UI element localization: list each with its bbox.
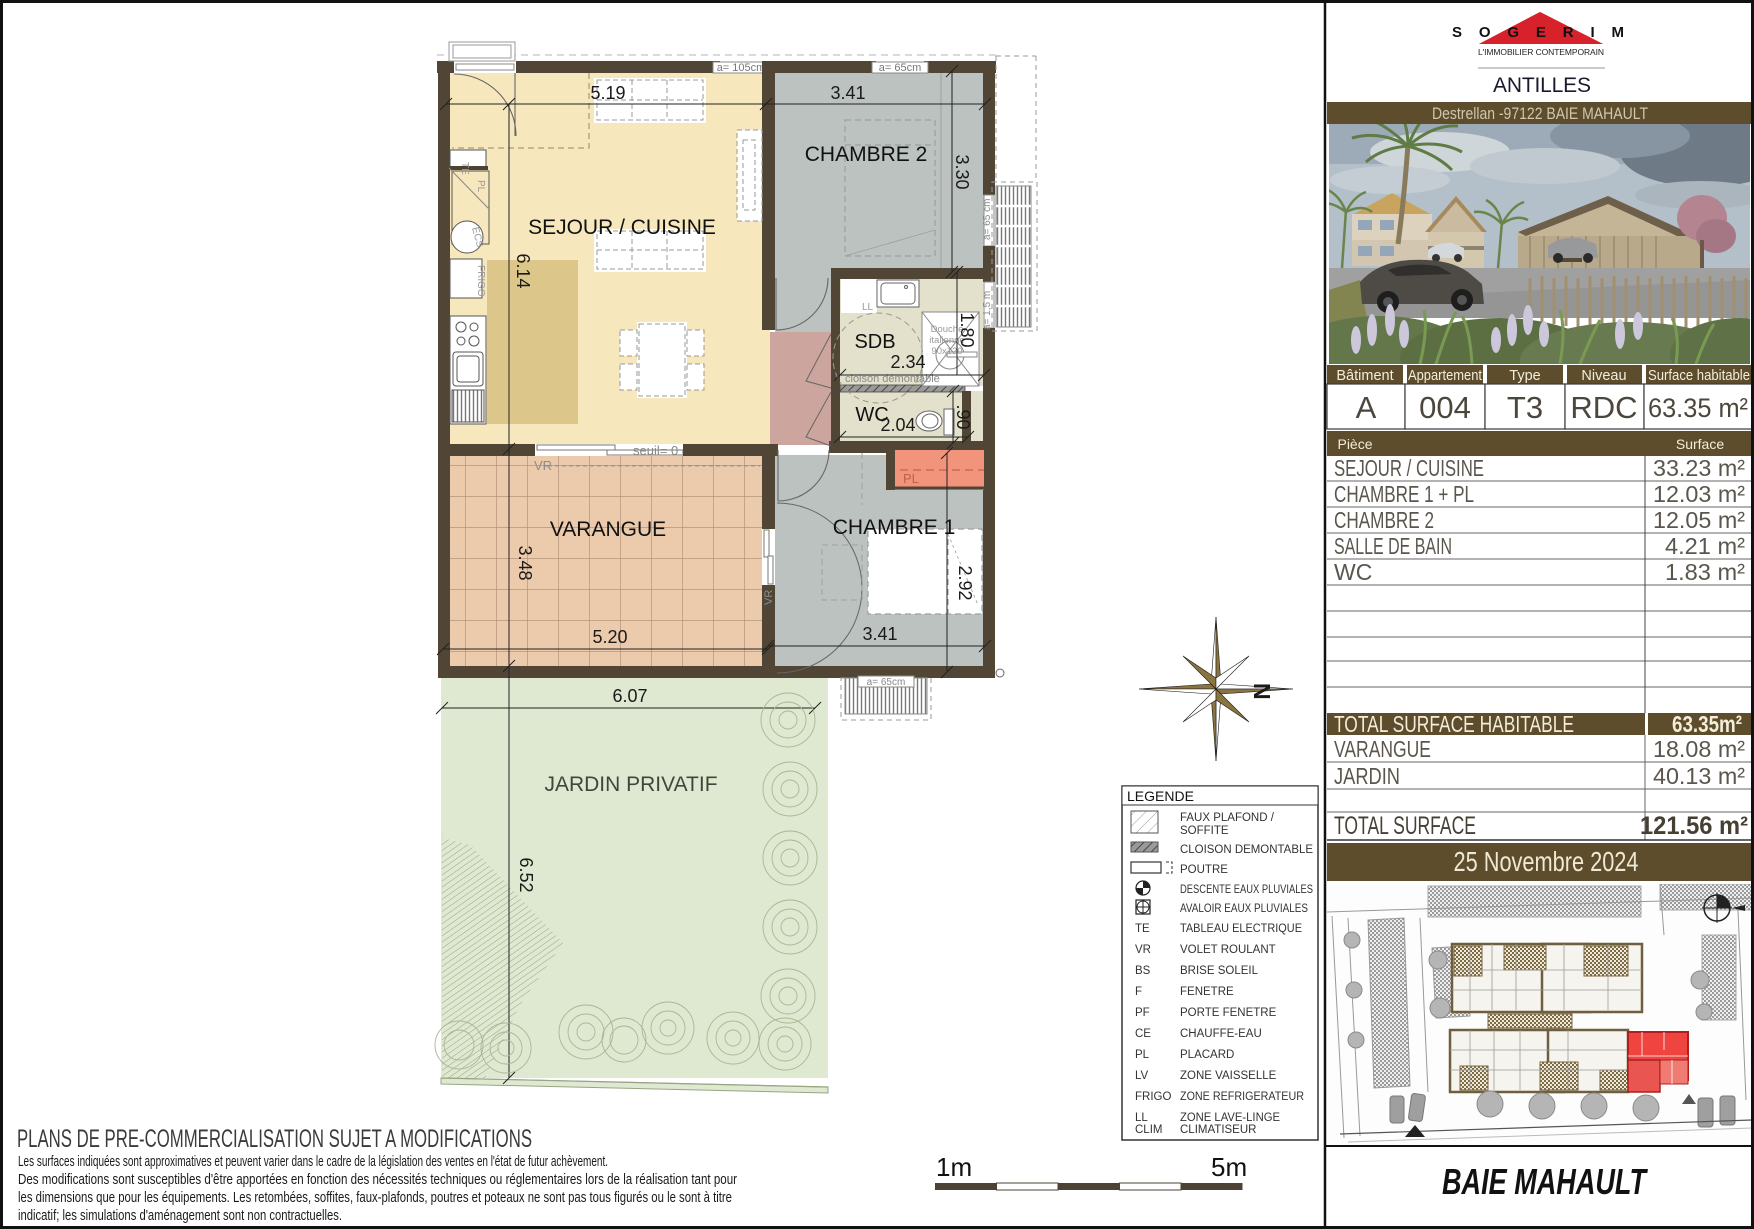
svg-text:PLANS DE PRE-COMMERCIALISATION: PLANS DE PRE-COMMERCIALISATION SUJET A M…	[17, 1125, 532, 1153]
svg-text:BRISE SOLEIL: BRISE SOLEIL	[1180, 965, 1259, 977]
svg-text:TABLEAU ELECTRIQUE: TABLEAU ELECTRIQUE	[1180, 923, 1302, 935]
svg-text:Bâtiment: Bâtiment	[1336, 368, 1393, 384]
svg-text:Surface habitable: Surface habitable	[1648, 368, 1750, 384]
svg-text:40.13 m²: 40.13 m²	[1653, 763, 1745, 789]
svg-text:Type: Type	[1509, 368, 1540, 384]
svg-text:12.05 m²: 12.05 m²	[1653, 507, 1745, 533]
svg-text:18.08 m²: 18.08 m²	[1653, 736, 1745, 762]
svg-text:Surface: Surface	[1676, 436, 1724, 452]
svg-text:LV: LV	[1135, 1070, 1149, 1082]
svg-text:PL: PL	[475, 180, 486, 193]
svg-text:5.20: 5.20	[592, 627, 627, 647]
svg-text:.90: .90	[953, 404, 973, 429]
svg-text:90x120: 90x120	[931, 346, 962, 357]
svg-text:BAIE MAHAULT: BAIE MAHAULT	[1442, 1161, 1648, 1202]
svg-text:Destrellan -97122 BAIE MAHAULT: Destrellan -97122 BAIE MAHAULT	[1432, 104, 1648, 123]
svg-text:SOGERIM: SOGERIM	[1452, 24, 1624, 41]
svg-text:CLIM: CLIM	[1135, 1124, 1162, 1136]
svg-text:a= 105cm: a= 105cm	[717, 62, 766, 74]
svg-text:PL: PL	[1135, 1049, 1150, 1061]
svg-text:1m: 1m	[936, 1152, 972, 1182]
svg-text:BS: BS	[1135, 965, 1151, 977]
svg-text:SEJOUR / CUISINE: SEJOUR / CUISINE	[528, 216, 716, 239]
svg-text:6.07: 6.07	[612, 686, 647, 706]
svg-text:PLACARD: PLACARD	[1180, 1049, 1234, 1061]
svg-text:Niveau: Niveau	[1581, 368, 1626, 384]
svg-text:FRIGO: FRIGO	[1135, 1091, 1171, 1103]
svg-text:RDC: RDC	[1570, 390, 1637, 425]
svg-text:N: N	[1249, 683, 1275, 700]
svg-text:POUTRE: POUTRE	[1180, 864, 1228, 876]
svg-text:CHAMBRE 2: CHAMBRE 2	[805, 143, 928, 166]
svg-text:VARANGUE: VARANGUE	[1334, 736, 1431, 762]
svg-text:FENETRE: FENETRE	[1180, 986, 1234, 998]
svg-text:ZONE VAISSELLE: ZONE VAISSELLE	[1180, 1070, 1277, 1082]
svg-text:DESCENTE EAUX PLUVIALES: DESCENTE EAUX PLUVIALES	[1180, 884, 1313, 896]
svg-text:VOLET ROULANT: VOLET ROULANT	[1180, 944, 1276, 956]
svg-text:CHAMBRE 2: CHAMBRE 2	[1334, 507, 1434, 533]
svg-text:a= 65cm: a= 65cm	[879, 62, 922, 74]
svg-text:121.56 m²: 121.56 m²	[1640, 812, 1748, 840]
svg-text:FAUX PLAFOND /: FAUX PLAFOND /	[1180, 812, 1275, 824]
svg-text:AVALOIR EAUX PLUVIALES: AVALOIR EAUX PLUVIALES	[1180, 903, 1308, 915]
svg-text:a= 1,5 m: a= 1,5 m	[982, 291, 993, 330]
svg-text:SEJOUR / CUISINE: SEJOUR / CUISINE	[1334, 455, 1484, 481]
svg-text:VARANGUE: VARANGUE	[550, 518, 666, 541]
svg-text:2.34: 2.34	[890, 352, 925, 372]
svg-text:CHAMBRE 1 + PL: CHAMBRE 1 + PL	[1334, 481, 1474, 507]
svg-text:6.14: 6.14	[513, 253, 533, 288]
svg-text:WC: WC	[1334, 559, 1372, 585]
svg-text:2.92: 2.92	[955, 565, 975, 600]
svg-text:6.52: 6.52	[516, 857, 536, 892]
svg-text:LL: LL	[1135, 1112, 1148, 1124]
svg-text:004: 004	[1419, 390, 1471, 425]
svg-text:TE: TE	[1135, 923, 1150, 935]
svg-text:indicatif; les simulations d'a: indicatif; les simulations d'aménagement…	[18, 1208, 342, 1224]
svg-text:SALLE DE BAIN: SALLE DE BAIN	[1334, 533, 1452, 559]
svg-text:les dimensions que pour les éq: les dimensions que pour les équipements.…	[18, 1190, 732, 1206]
svg-text:5.19: 5.19	[590, 83, 625, 103]
svg-text:T3: T3	[1507, 390, 1543, 425]
svg-text:VR: VR	[1135, 944, 1151, 956]
svg-text:4.21 m²: 4.21 m²	[1665, 533, 1745, 559]
svg-text:3.41: 3.41	[830, 83, 865, 103]
svg-text:PL: PL	[903, 471, 919, 486]
svg-text:a= 65cm: a= 65cm	[867, 677, 906, 688]
svg-text:JARDIN PRIVATIF: JARDIN PRIVATIF	[544, 773, 717, 796]
svg-text:CLIMATISEUR: CLIMATISEUR	[1180, 1124, 1256, 1136]
svg-text:PF: PF	[1135, 1007, 1150, 1019]
svg-text:63.35 m²: 63.35 m²	[1648, 393, 1748, 423]
svg-text:PORTE FENETRE: PORTE FENETRE	[1180, 1007, 1277, 1019]
svg-text:A: A	[1356, 390, 1377, 425]
svg-text:WC: WC	[855, 404, 888, 426]
svg-text:TOTAL SURFACE HABITABLE: TOTAL SURFACE HABITABLE	[1334, 711, 1574, 737]
svg-text:Appartement: Appartement	[1408, 368, 1482, 384]
svg-text:1.80: 1.80	[957, 312, 977, 347]
svg-text:CHAMBRE 1: CHAMBRE 1	[833, 516, 956, 539]
svg-text:ZONE REFRIGERATEUR: ZONE REFRIGERATEUR	[1180, 1091, 1304, 1103]
svg-text:3.48: 3.48	[515, 545, 535, 580]
svg-text:CLOISON DEMONTABLE: CLOISON DEMONTABLE	[1180, 844, 1313, 856]
svg-text:JARDIN: JARDIN	[1334, 763, 1400, 789]
svg-text:33.23 m²: 33.23 m²	[1653, 455, 1745, 481]
svg-text:TE: TE	[459, 162, 470, 175]
svg-text:L'IMMOBILIER CONTEMPORAIN: L'IMMOBILIER CONTEMPORAIN	[1478, 47, 1604, 57]
svg-text:Les surfaces indiquées sont ap: Les surfaces indiquées sont approximativ…	[18, 1154, 608, 1170]
svg-text:LL: LL	[862, 302, 874, 313]
svg-text:VR: VR	[763, 590, 775, 605]
svg-text:LEGENDE: LEGENDE	[1127, 788, 1194, 804]
svg-text:CE: CE	[1135, 1028, 1151, 1040]
svg-text:1.83 m²: 1.83 m²	[1665, 559, 1745, 585]
svg-text:CHAUFFE-EAU: CHAUFFE-EAU	[1180, 1028, 1262, 1040]
svg-text:Des modifications sont suscept: Des modifications sont susceptibles d'êt…	[18, 1172, 737, 1188]
svg-text:FRIGO: FRIGO	[475, 265, 486, 297]
svg-text:5m: 5m	[1211, 1152, 1247, 1182]
svg-text:12.03 m²: 12.03 m²	[1653, 481, 1745, 507]
svg-text:SDB: SDB	[854, 331, 895, 353]
svg-text:ZONE LAVE-LINGE: ZONE LAVE-LINGE	[1180, 1112, 1280, 1124]
svg-text:ANTILLES: ANTILLES	[1493, 74, 1591, 97]
svg-text:a= 65 cm: a= 65 cm	[982, 199, 993, 240]
svg-text:63.35m²: 63.35m²	[1672, 711, 1742, 737]
svg-text:Pièce: Pièce	[1337, 436, 1372, 452]
svg-text:F: F	[1135, 986, 1142, 998]
svg-text:3.30: 3.30	[952, 154, 972, 189]
svg-text:25 Novembre 2024: 25 Novembre 2024	[1454, 846, 1639, 877]
svg-text:TOTAL SURFACE: TOTAL SURFACE	[1334, 812, 1476, 840]
svg-text:3.41: 3.41	[862, 624, 897, 644]
svg-text:SOFFITE: SOFFITE	[1180, 825, 1229, 837]
